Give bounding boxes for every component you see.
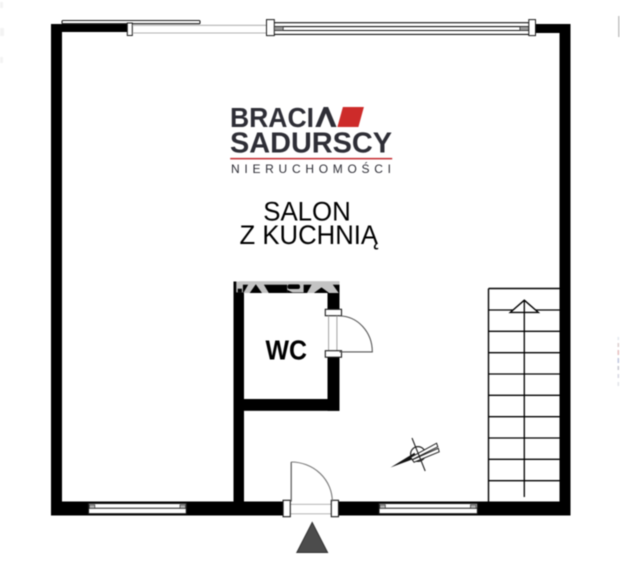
svg-text:NIERUCHOMOŚCI: NIERUCHOMOŚCI [231,161,391,176]
svg-text:WC: WC [266,335,308,366]
svg-text:Z KUCHNIĄ: Z KUCHNIĄ [240,220,379,250]
svg-text:SADURSCY: SADURSCY [230,127,392,159]
